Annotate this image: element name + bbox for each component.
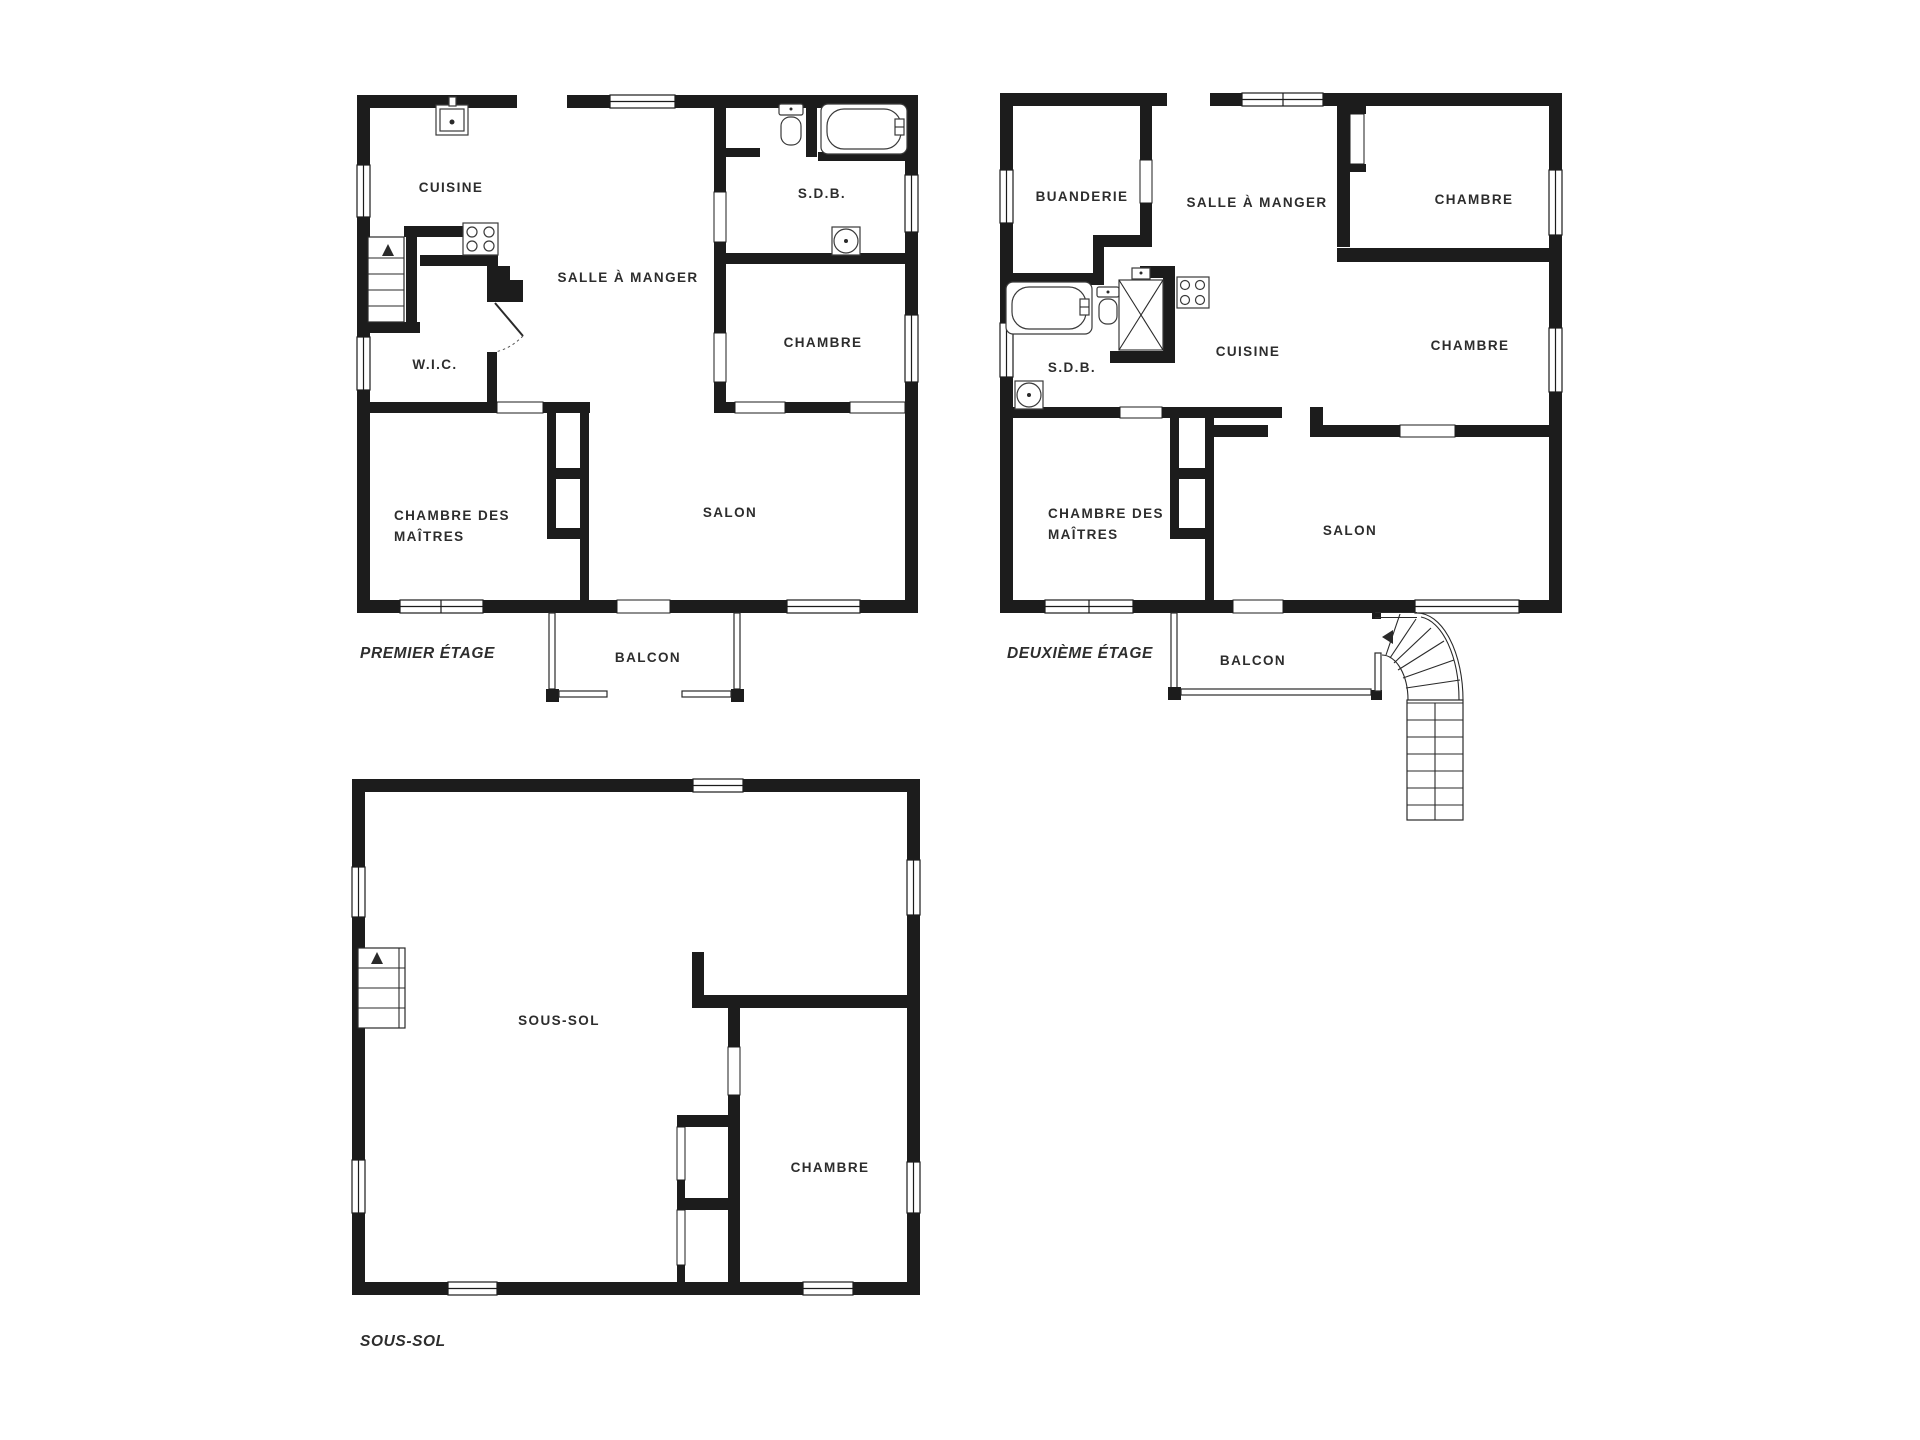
round-fixture-icon [832,227,860,255]
room-label-chambre-des-maitres-2: MAÎTRES [1048,527,1119,542]
room-label-sdb: S.D.B. [798,186,846,201]
room-label-chambre-haut: CHAMBRE [1435,192,1514,207]
stairs-up-icon [368,237,404,322]
room-label-cuisine: CUISINE [419,180,484,195]
toilet-icon [779,104,803,145]
page-background [0,0,1920,1440]
room-label-chambre-bas: CHAMBRE [1431,338,1510,353]
floor-title-premier-etage: PREMIER ÉTAGE [360,645,495,662]
room-label-salle-a-manger: SALLE À MANGER [1186,195,1327,210]
room-label-salon: SALON [703,505,757,520]
room-label-chambre: CHAMBRE [784,335,863,350]
stove-icon [463,223,498,255]
room-label-sdb: S.D.B. [1048,360,1096,375]
room-label-chambre-des-maitres-2: MAÎTRES [394,529,465,544]
stove-icon [1177,277,1209,308]
room-label-chambre-des-maitres-1: CHAMBRE DES [394,508,510,523]
room-label-balcon: BALCON [1220,653,1286,668]
room-label-balcon: BALCON [615,650,681,665]
floor-plans-canvas: CUISINE SALLE À MANGER S.D.B. CHAMBRE W.… [0,0,1920,1440]
room-label-chambre: CHAMBRE [791,1160,870,1175]
bathtub-icon [1006,282,1092,334]
round-fixture-icon [1015,381,1043,409]
toilet-icon [1097,287,1119,324]
room-label-salle-a-manger: SALLE À MANGER [557,270,698,285]
stairs-up-icon [358,948,405,1028]
room-label-sous-sol: SOUS-SOL [518,1013,600,1028]
floor-title-deuxieme-etage: DEUXIÈME ÉTAGE [1007,645,1153,662]
floor-title-sous-sol: SOUS-SOL [360,1333,446,1350]
shower-icon [1119,268,1163,350]
room-label-buanderie: BUANDERIE [1036,189,1129,204]
room-label-salon: SALON [1323,523,1377,538]
room-label-chambre-des-maitres-1: CHAMBRE DES [1048,506,1164,521]
bathtub-icon [821,104,907,154]
room-label-cuisine: CUISINE [1216,344,1281,359]
room-label-wic: W.I.C. [412,357,457,372]
